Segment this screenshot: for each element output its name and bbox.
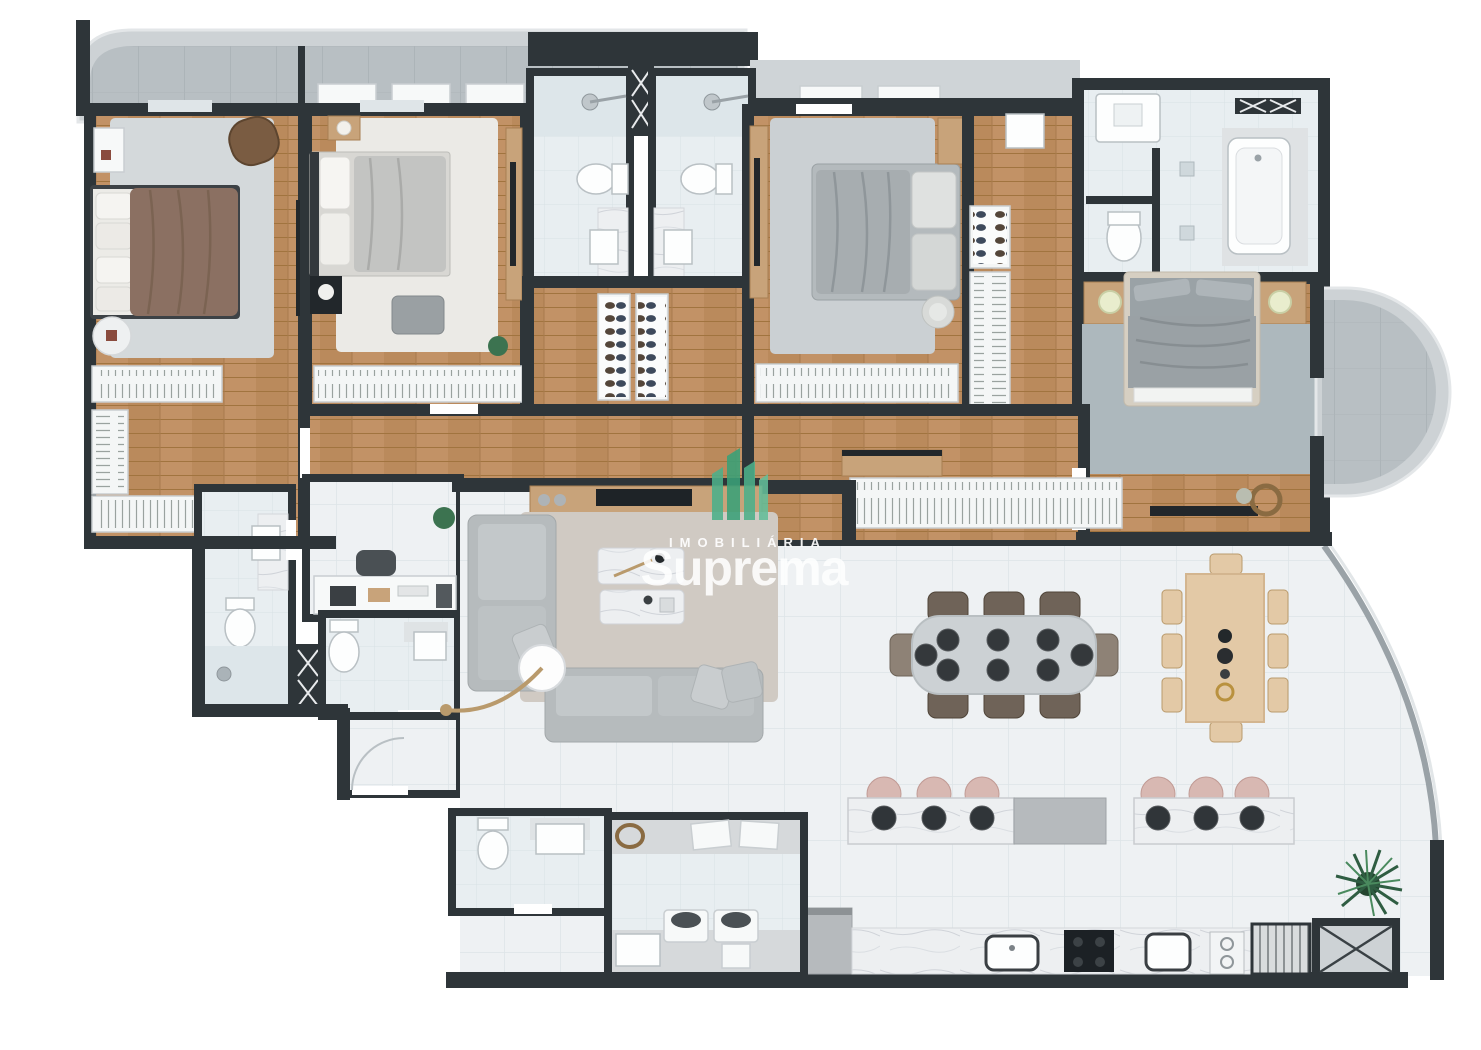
closet-corridor: [528, 282, 756, 410]
wood-chair: [1210, 722, 1242, 742]
shaft-room-bottom: [1316, 922, 1396, 976]
utility-shaft-mid: [294, 644, 322, 712]
entry-hall: [345, 716, 460, 795]
sink-faucet: [1009, 945, 1015, 951]
entry-door-gap: [352, 786, 408, 795]
shoe-rack-shoes: [600, 297, 628, 397]
corner-wall: [76, 20, 90, 116]
desk-monitor: [330, 586, 356, 606]
table-decor: [644, 596, 653, 605]
balcony-wall-upper: [1310, 282, 1324, 378]
plant: [488, 336, 508, 356]
floorplan-svg: IMOBILIÁRIA Suprema: [0, 0, 1481, 1050]
bedroom1-bed: [90, 185, 240, 319]
washer-lid: [721, 912, 751, 928]
shower-area: [534, 76, 626, 136]
master-vanity-sink: [1114, 104, 1142, 126]
bedroom3-closet: [756, 364, 958, 402]
bedroom2-tv-panel: [510, 162, 516, 266]
walk-in-closet: [968, 110, 1080, 410]
west-step-wall: [192, 540, 205, 716]
bedroom3-door-gap: [796, 104, 852, 114]
wood-chair: [1162, 590, 1182, 624]
place-setting: [1240, 806, 1264, 830]
bathtub-basin: [1236, 148, 1282, 244]
toilet: [577, 164, 615, 194]
balcony-divider-wall: [298, 46, 305, 108]
master-bathroom: [1078, 84, 1324, 278]
bedroom-2: [306, 100, 526, 414]
speaker: [554, 494, 566, 506]
balcony-door: [148, 100, 212, 112]
bedroom3-tv-panel: [754, 158, 760, 266]
toilet-tank: [612, 164, 628, 194]
television: [596, 489, 692, 506]
master-tv-shelf: [1150, 506, 1258, 516]
centerpiece: [1218, 629, 1232, 643]
centerpiece: [1220, 669, 1230, 679]
cooktop: [1064, 930, 1114, 972]
kitchen-sink: [986, 936, 1038, 970]
bed-bench: [392, 296, 444, 334]
toilet-tank: [226, 598, 254, 610]
shaft-box: [294, 644, 322, 712]
burner: [1073, 937, 1083, 947]
vanity-sink: [590, 230, 618, 264]
wood-chair: [1268, 678, 1288, 712]
vent-box: [1235, 98, 1301, 114]
burner: [1095, 957, 1105, 967]
wood-chair: [1210, 554, 1242, 574]
desk-keyboard: [398, 586, 428, 596]
southwest-wall: [192, 704, 348, 717]
toilet-tank: [330, 620, 358, 632]
bedroom2-door-gap: [430, 404, 478, 414]
toilet: [225, 609, 255, 647]
entry-west-wall: [337, 708, 350, 800]
curved-balcony: [1310, 282, 1450, 536]
shoe-rack-shoes: [638, 297, 666, 397]
toilet-niche-wall: [1086, 196, 1160, 204]
burner: [1073, 957, 1083, 967]
floorplan-image: IMOBILIÁRIA Suprema: [0, 0, 1481, 1050]
island-appliance: [1014, 798, 1106, 844]
wood-chair: [1162, 634, 1182, 668]
kitchen-curve-floor: [1324, 546, 1436, 976]
vanity-sink: [536, 824, 584, 854]
toilet-tank: [478, 818, 508, 830]
balcony-wall-lower: [1310, 436, 1324, 536]
walkin-shoes: [973, 210, 1007, 264]
entry-floor: [345, 716, 460, 794]
shower-area: [656, 76, 748, 136]
toilet: [681, 164, 719, 194]
table-decor-box: [660, 598, 674, 612]
bedroom-1: [90, 100, 310, 542]
place-setting: [922, 806, 946, 830]
side-table-decor: [106, 330, 117, 341]
tv-wall-stub: [760, 480, 856, 494]
watermark-title: Suprema: [641, 540, 850, 596]
floor-lamp-base: [440, 704, 452, 716]
west-lower-wall: [84, 536, 336, 549]
master-hall: [748, 410, 1122, 546]
speaker: [538, 494, 550, 506]
table-lamp: [318, 284, 334, 300]
hall-dresser-edge: [842, 450, 942, 456]
laundry-sink: [616, 934, 660, 966]
dresser-decor: [101, 150, 111, 160]
shower-drain: [1180, 162, 1194, 176]
towel-holder: [722, 944, 750, 968]
east-lower-wall: [1430, 840, 1444, 980]
pouf-top: [929, 303, 947, 321]
nightstand-lamp: [337, 121, 351, 135]
place-setting: [970, 806, 994, 830]
folded-towels: [739, 821, 779, 850]
folded-towels: [691, 820, 732, 850]
shower-drain: [217, 667, 231, 681]
office-chair: [356, 550, 396, 576]
master-bed: [1124, 272, 1260, 406]
master-south-wall: [1076, 532, 1332, 546]
tv-wall-arm: [842, 480, 856, 546]
grill-rack: [1252, 924, 1310, 974]
centerpiece: [1217, 648, 1233, 664]
living-room-furniture: [440, 486, 778, 742]
bbq-sink: [1146, 934, 1190, 970]
bedside-lamp: [1099, 291, 1121, 313]
planter-box: [466, 84, 524, 106]
bathroom-3: [198, 488, 296, 710]
desk-papers: [368, 588, 390, 602]
bedroom-3: [748, 104, 968, 410]
master-closet-rack: [850, 478, 1122, 528]
decor-sphere: [1236, 488, 1252, 504]
vanity-sink: [414, 632, 446, 660]
wood-chair: [1268, 634, 1288, 668]
desk-phone: [436, 584, 452, 608]
shower-drain: [1180, 226, 1194, 240]
walkin-vanity: [1006, 114, 1044, 148]
bedroom3-nightstand: [938, 118, 964, 164]
toilet: [478, 831, 508, 869]
shower-divider-wall: [1152, 148, 1160, 278]
walkin-rack-hangers: [974, 276, 1006, 404]
tub-faucet: [1255, 155, 1262, 162]
toilet: [329, 632, 359, 672]
plant: [433, 507, 455, 529]
wood-chair: [1162, 678, 1182, 712]
toilet-tank: [716, 164, 732, 194]
service-bath-door-gap: [514, 904, 552, 914]
toilet-tank: [1108, 212, 1140, 225]
shower-area: [202, 646, 288, 706]
laundry-room: [608, 816, 804, 974]
service-bathroom: [452, 812, 608, 914]
bath-block-north-wall: [528, 32, 758, 66]
bedside-lamp: [1269, 291, 1291, 313]
bedroom3-bed: [812, 164, 960, 300]
bedroom2-bed: [310, 152, 450, 276]
dining-table-top: [912, 616, 1096, 694]
wood-chair: [1268, 590, 1288, 624]
balcony-door: [360, 100, 424, 112]
bathroom-1: [530, 72, 630, 286]
place-setting: [1194, 806, 1218, 830]
burner: [1095, 937, 1105, 947]
bedroom1-door-gap: [300, 428, 310, 478]
place-setting: [1146, 806, 1170, 830]
place-setting: [872, 806, 896, 830]
bathroom-2: [652, 72, 752, 286]
washer-lid: [671, 912, 701, 928]
bedroom2-closet: [314, 366, 522, 402]
vanity-sink: [664, 230, 692, 264]
